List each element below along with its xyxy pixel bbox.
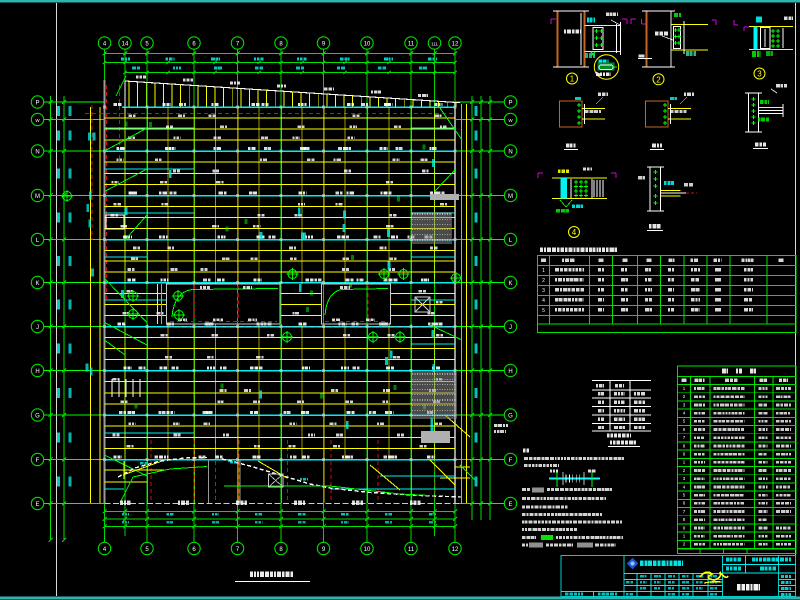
svg-text:M: M [35, 194, 40, 200]
svg-text:111: 111 [431, 42, 438, 47]
svg-text:3: 3 [757, 70, 762, 79]
svg-text:J: J [509, 325, 512, 331]
svg-text:5: 5 [542, 308, 545, 314]
svg-text:N: N [35, 149, 39, 155]
svg-text:K: K [508, 281, 512, 287]
svg-text:2: 2 [656, 75, 661, 84]
svg-text:1: 1 [542, 268, 545, 274]
svg-text:E: E [35, 502, 39, 508]
svg-text:4: 4 [542, 298, 545, 304]
svg-text:E: E [508, 502, 512, 508]
svg-text:12: 12 [452, 42, 459, 48]
svg-text:H: H [508, 369, 512, 375]
svg-text:12: 12 [452, 547, 459, 553]
svg-text:3: 3 [542, 288, 545, 294]
svg-text:J: J [36, 325, 39, 331]
svg-text:10: 10 [364, 42, 371, 48]
svg-text:11: 11 [408, 547, 415, 553]
svg-text:K: K [35, 281, 39, 287]
svg-text:G: G [508, 413, 513, 419]
svg-text:P: P [508, 100, 512, 106]
svg-text:G: G [35, 413, 40, 419]
svg-text:11: 11 [408, 42, 415, 48]
svg-text:M: M [508, 194, 513, 200]
svg-text:F: F [36, 458, 40, 464]
svg-text:H: H [35, 369, 39, 375]
svg-text:14: 14 [122, 42, 129, 48]
svg-text:F: F [509, 458, 513, 464]
svg-text:P: P [35, 100, 39, 106]
svg-text:1: 1 [570, 75, 575, 84]
svg-text:10: 10 [364, 547, 371, 553]
svg-text:2: 2 [542, 278, 545, 284]
svg-text:N: N [508, 149, 512, 155]
svg-text:4: 4 [572, 228, 577, 237]
